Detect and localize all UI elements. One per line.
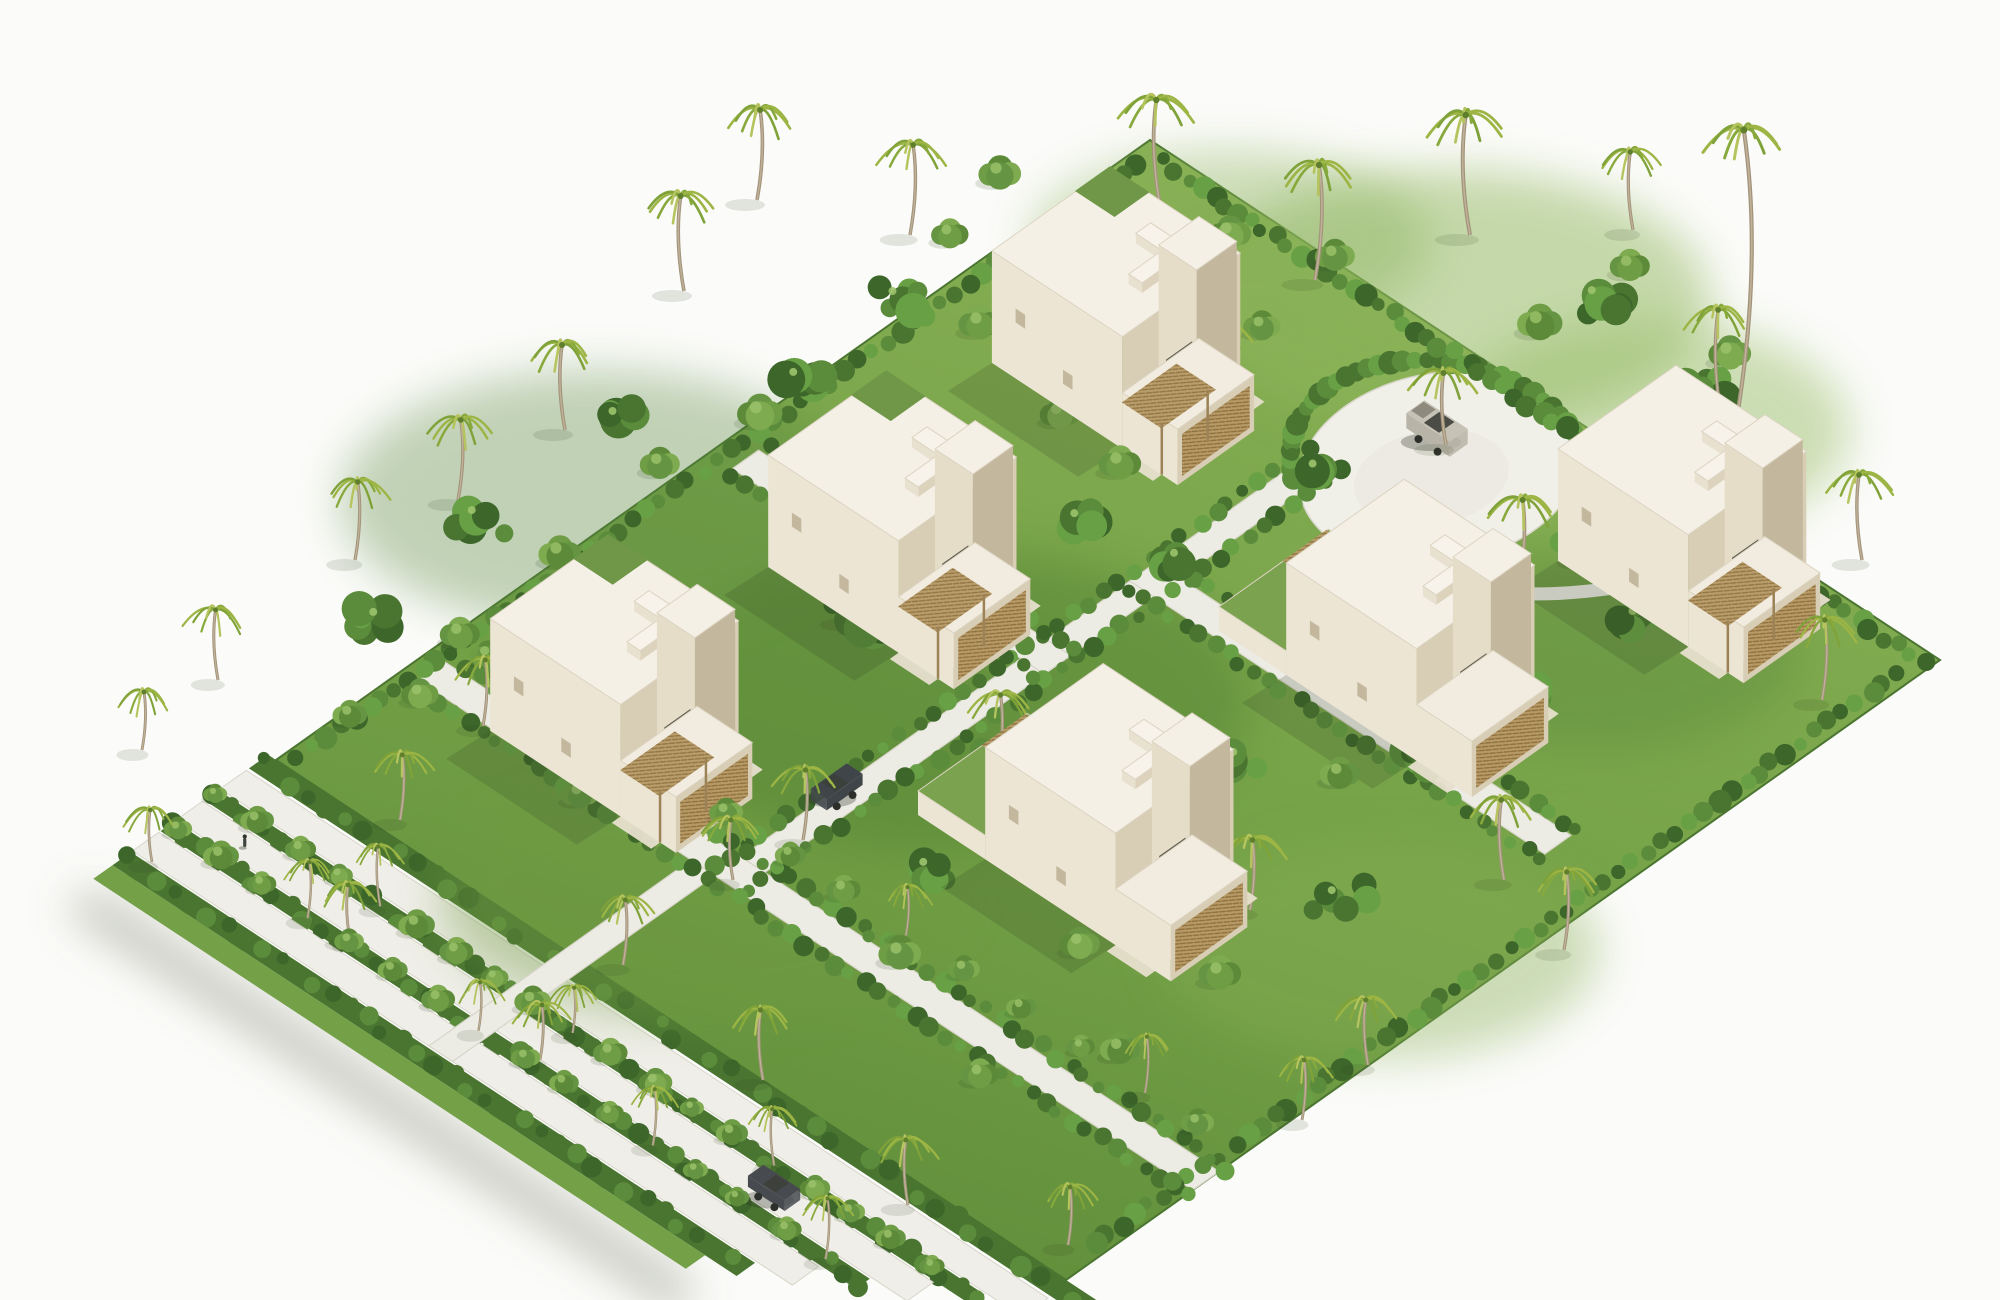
shrub-cluster (342, 591, 404, 645)
site-plan-svg (0, 0, 2000, 1300)
masterplan-render (0, 0, 2000, 1300)
shrub-cluster (1577, 279, 1638, 326)
